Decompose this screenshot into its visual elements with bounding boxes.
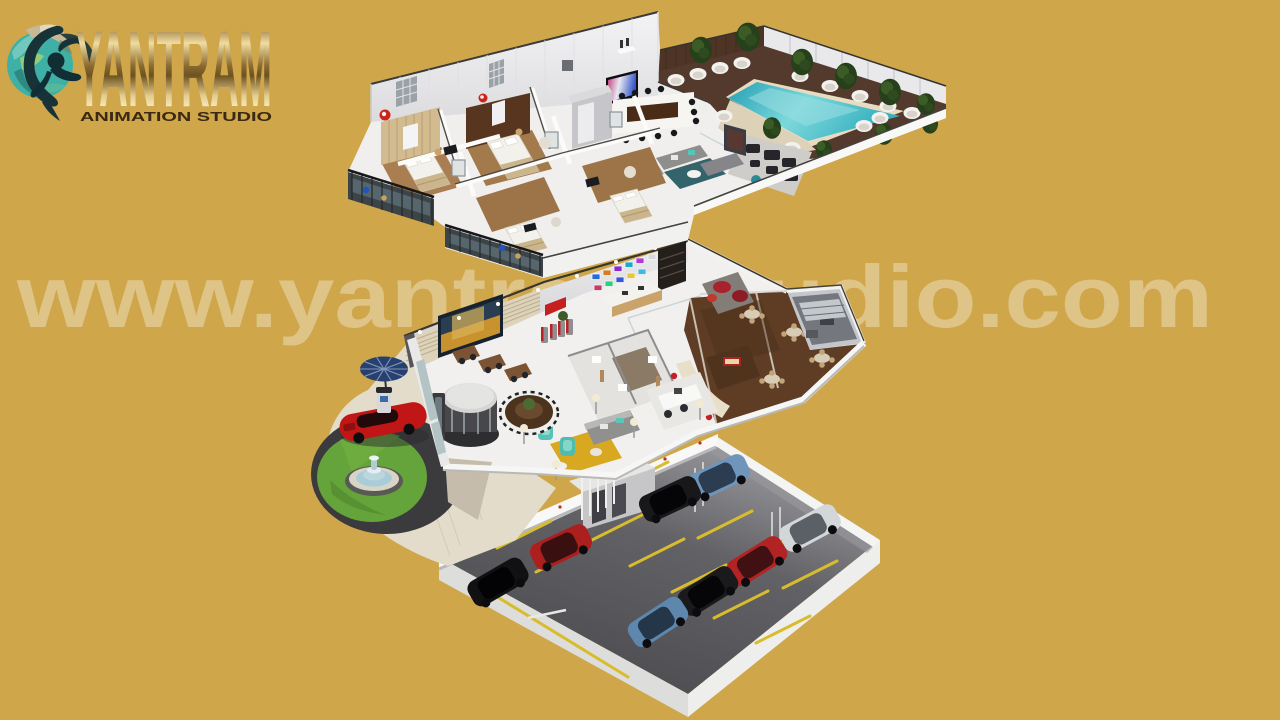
- svg-text:ANIMATION STUDIO: ANIMATION STUDIO: [80, 109, 272, 124]
